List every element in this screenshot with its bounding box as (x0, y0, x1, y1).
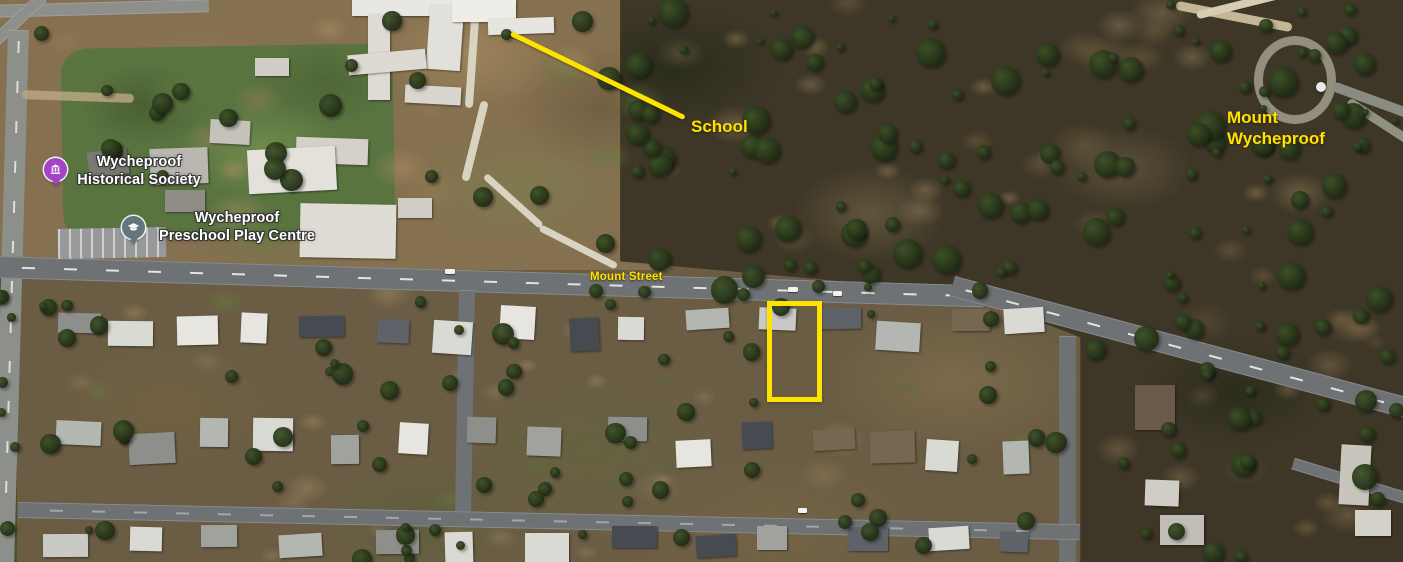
building (398, 198, 432, 218)
tree (851, 493, 865, 507)
tree (473, 187, 493, 207)
mount-label-line: Mount (1227, 107, 1325, 128)
tree (219, 109, 238, 128)
tree (648, 16, 655, 23)
tree (345, 59, 358, 72)
tree (1325, 32, 1347, 54)
ground-patch (372, 148, 430, 188)
tree (425, 170, 438, 183)
tree (1355, 390, 1377, 412)
tree (40, 434, 60, 454)
tree (736, 226, 761, 251)
building (299, 316, 344, 338)
tree (1187, 123, 1210, 146)
tree (572, 11, 593, 32)
tree (1277, 262, 1305, 290)
building (818, 308, 861, 329)
ground-patch (692, 388, 717, 405)
tree (626, 123, 648, 145)
building (1355, 510, 1391, 536)
ground-patch (1133, 17, 1175, 47)
tree (1202, 369, 1213, 380)
ground-patch (874, 162, 901, 181)
tree (315, 339, 332, 356)
historical-society-pin[interactable] (44, 158, 67, 190)
building (130, 527, 162, 551)
tree (677, 403, 695, 421)
tree (415, 296, 427, 308)
tree (953, 180, 970, 197)
tree (979, 386, 997, 404)
tree (638, 286, 651, 299)
tree (1315, 319, 1331, 335)
preschool-label: Wycheproof Preschool Play Centre (159, 209, 315, 245)
tree (0, 408, 6, 417)
tree (770, 10, 776, 16)
tree (978, 193, 1003, 218)
ground-patch (722, 29, 750, 48)
parking-lot (58, 227, 167, 259)
tree (1362, 109, 1368, 115)
building (742, 421, 773, 449)
tree (838, 515, 852, 529)
tree (578, 530, 586, 538)
tree (1028, 199, 1049, 220)
tree (101, 85, 112, 96)
historical-society-label: Wycheproof Historical Society (77, 153, 201, 189)
ground-patch (298, 412, 327, 433)
tree (1108, 53, 1118, 63)
vehicle (445, 269, 455, 274)
tree (626, 53, 650, 77)
tree (10, 442, 20, 452)
mount-label-line: Wycheproof (1227, 128, 1325, 149)
ground-patch (204, 288, 244, 316)
tree (812, 280, 825, 293)
ground-patch (120, 303, 149, 323)
poi-label-line: Preschool Play Centre (159, 227, 315, 245)
tree (1028, 429, 1045, 446)
poi-label-line: Wycheproof (77, 153, 201, 171)
tree (909, 140, 922, 153)
tree (1115, 157, 1135, 177)
tree (885, 217, 900, 232)
ground-patch (310, 16, 349, 43)
tree (61, 300, 72, 311)
tree (1354, 53, 1376, 75)
tree (1263, 175, 1272, 184)
tree (58, 329, 76, 347)
building (398, 423, 429, 456)
building (676, 439, 712, 467)
tree (1166, 0, 1175, 9)
tree (382, 11, 401, 30)
tree (749, 398, 758, 407)
tree (878, 124, 897, 143)
tree (996, 267, 1006, 277)
tree (1045, 432, 1067, 454)
ground-patch (897, 194, 943, 226)
tree (90, 316, 109, 335)
tree (679, 45, 688, 54)
poi-label-line: Wycheproof (159, 209, 315, 227)
building (43, 534, 88, 557)
tree (506, 364, 521, 379)
mount-wycheproof-label: Mount Wycheproof (1227, 107, 1325, 149)
tree (846, 219, 866, 239)
tree (642, 106, 659, 123)
tree (1370, 492, 1384, 506)
vehicle (798, 508, 807, 513)
tree (867, 310, 875, 318)
tree (1161, 422, 1176, 437)
tree (836, 201, 846, 211)
tree (1192, 38, 1199, 45)
building (685, 308, 729, 331)
building (279, 532, 323, 558)
building (618, 317, 645, 341)
tree (1389, 403, 1403, 418)
tree (1174, 25, 1184, 35)
building (432, 320, 473, 356)
tree (95, 521, 115, 541)
building (925, 439, 959, 472)
tree (791, 26, 814, 49)
tree (1042, 69, 1048, 75)
graduation-cap-icon (127, 221, 140, 234)
tree (1186, 168, 1197, 179)
ground-patch (1292, 518, 1321, 538)
tree (1118, 457, 1129, 468)
tree (1141, 528, 1152, 539)
building (56, 420, 102, 446)
museum-icon (49, 163, 62, 176)
tree (619, 472, 633, 486)
vehicle (833, 291, 842, 296)
ground-patch (800, 458, 847, 491)
ground-patch (233, 82, 283, 117)
building (1003, 440, 1031, 474)
preschool-pin[interactable] (122, 216, 145, 248)
tree (861, 523, 879, 541)
building (108, 320, 153, 345)
building (199, 418, 227, 447)
tree (648, 248, 671, 271)
tree (245, 448, 262, 465)
tree (985, 361, 996, 372)
mount-street-label: Mount Street (590, 271, 663, 283)
tree (530, 186, 549, 205)
tree (938, 152, 955, 169)
tree (1210, 40, 1232, 62)
tree (1171, 442, 1187, 458)
tree (983, 311, 999, 327)
tree (673, 529, 690, 546)
tree (152, 93, 173, 114)
tree (225, 370, 238, 383)
tree (836, 43, 844, 51)
tree (775, 216, 801, 242)
tree (589, 284, 603, 298)
tree (1036, 43, 1059, 66)
ground-patch (574, 544, 599, 561)
tree (1380, 349, 1395, 364)
tree (1352, 464, 1378, 490)
tree (952, 89, 963, 100)
tree (652, 481, 670, 499)
tree (869, 77, 882, 90)
tree (7, 313, 15, 321)
building (526, 427, 561, 457)
tree (172, 83, 190, 101)
tree (915, 537, 932, 554)
building (467, 417, 497, 444)
tree (605, 423, 626, 444)
building (812, 428, 856, 452)
ground-patch (1213, 238, 1248, 263)
tree (85, 526, 93, 534)
tree (864, 284, 872, 292)
building (757, 526, 787, 551)
tree (1240, 454, 1255, 469)
building (377, 318, 410, 343)
building (696, 533, 737, 558)
ground-patch (286, 473, 328, 502)
tree (711, 276, 739, 304)
building (875, 320, 921, 352)
building (240, 312, 268, 343)
tree (1353, 142, 1362, 151)
tree (743, 343, 761, 361)
ground-patch (585, 373, 608, 389)
tree (352, 549, 372, 562)
building (928, 526, 970, 551)
building (488, 17, 555, 35)
tree (372, 457, 387, 472)
tree (1203, 542, 1224, 562)
tree (476, 477, 492, 493)
tree (1123, 117, 1136, 130)
building (525, 533, 569, 562)
satellite-map-view[interactable]: Wycheproof Historical Society Wycheproof… (0, 0, 1403, 562)
dome-structure (1316, 82, 1326, 92)
tree (409, 72, 426, 89)
vehicle (788, 287, 798, 292)
tree (34, 26, 49, 41)
building (612, 526, 658, 548)
tree (498, 379, 514, 395)
school-label: School (691, 117, 748, 137)
tree (1258, 282, 1264, 288)
tree (1106, 208, 1124, 226)
building (1004, 307, 1045, 335)
building (569, 317, 599, 351)
tree (1017, 512, 1035, 530)
ground-patch (1364, 334, 1387, 350)
tree (1321, 206, 1332, 217)
tree (1077, 172, 1086, 181)
tree (1083, 218, 1111, 246)
building (331, 435, 359, 464)
building (869, 430, 915, 463)
ground-patch (794, 73, 827, 96)
tree (658, 354, 670, 366)
tree (1175, 314, 1191, 330)
building (177, 315, 219, 345)
tree (1259, 19, 1272, 32)
building (201, 525, 238, 547)
ground-patch (190, 350, 223, 373)
tree (113, 420, 135, 442)
tree (1291, 191, 1308, 208)
tree (1178, 293, 1188, 303)
building (1000, 531, 1028, 553)
building (1145, 479, 1180, 506)
tree (1245, 386, 1255, 396)
tree (893, 239, 922, 268)
property-highlight-box (767, 301, 822, 402)
tree (972, 282, 989, 299)
tree (977, 145, 990, 158)
tree (967, 454, 977, 464)
tree (1235, 550, 1247, 562)
building (255, 58, 289, 76)
tree (1344, 4, 1356, 16)
tree (1322, 173, 1347, 198)
tree (624, 436, 637, 449)
tree (858, 260, 871, 273)
tree (1134, 326, 1159, 351)
poi-label-line: Historical Society (77, 171, 201, 189)
tree (1332, 102, 1349, 119)
building (128, 431, 176, 464)
